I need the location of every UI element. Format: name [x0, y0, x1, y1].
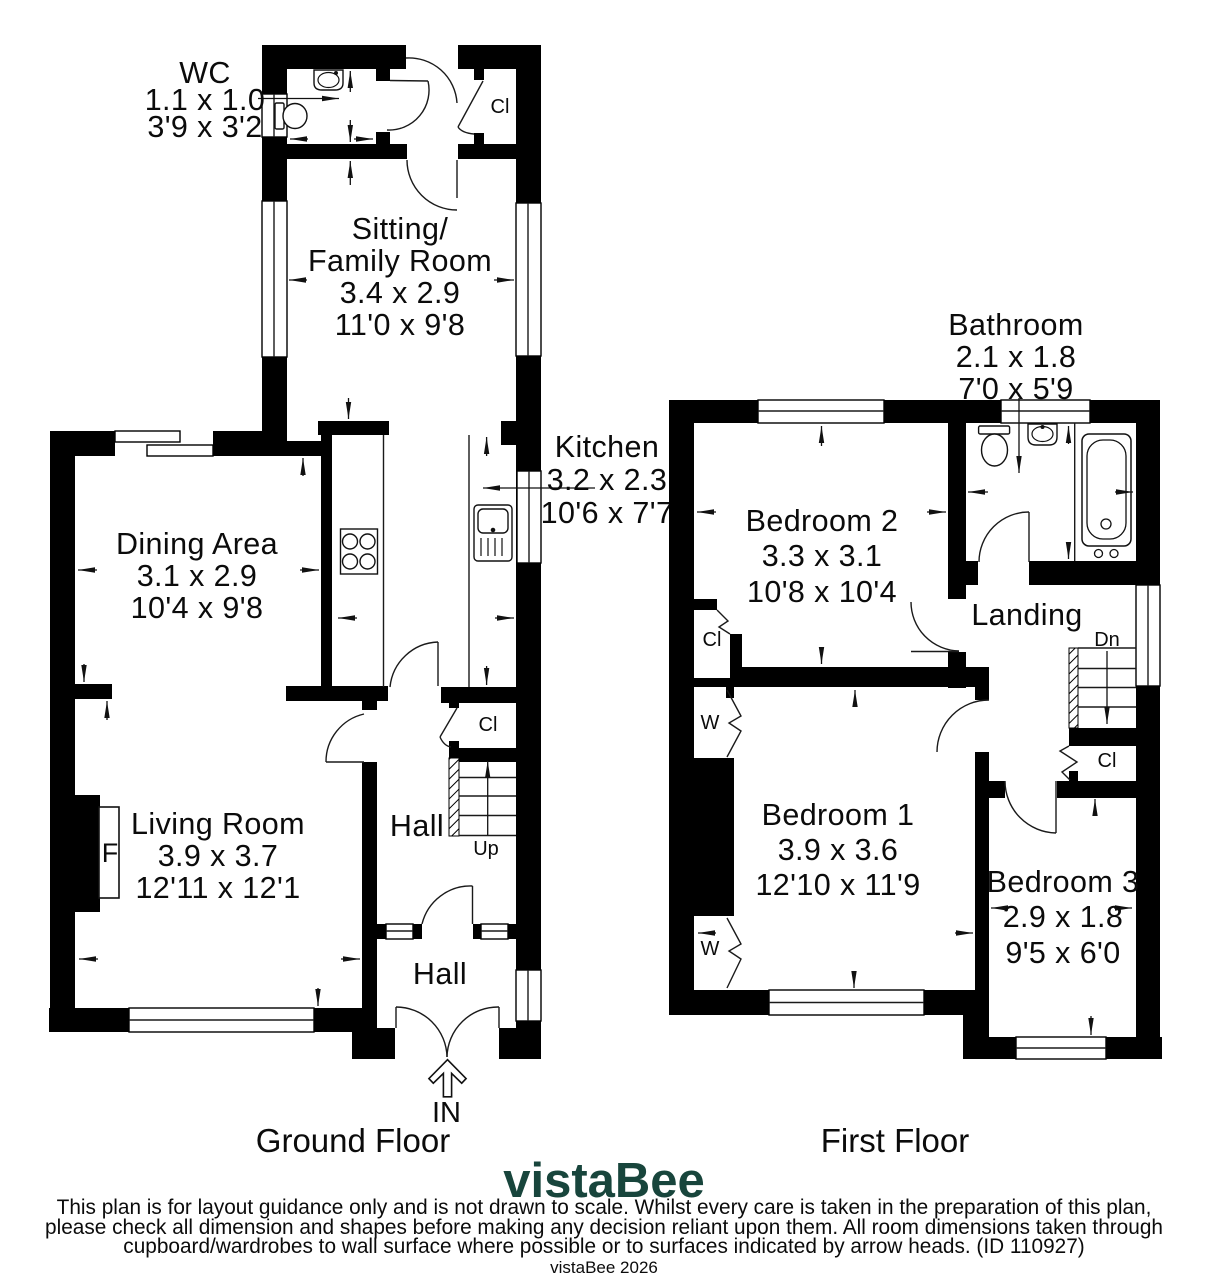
svg-text:F: F	[102, 838, 119, 868]
svg-text:Kitchen: Kitchen	[555, 430, 660, 464]
svg-text:vistaBee 2026: vistaBee 2026	[550, 1258, 658, 1277]
svg-text:Bedroom 2: Bedroom 2	[746, 504, 899, 538]
svg-text:Hall: Hall	[413, 957, 467, 991]
svg-text:Cl: Cl	[491, 96, 510, 118]
svg-text:Sitting/: Sitting/	[352, 212, 449, 246]
svg-text:3.9 x 3.6: 3.9 x 3.6	[778, 833, 899, 867]
svg-text:3'9 x 3'2: 3'9 x 3'2	[147, 110, 262, 144]
svg-text:3.4 x 2.9: 3.4 x 2.9	[340, 276, 461, 310]
svg-text:Up: Up	[473, 838, 499, 860]
svg-text:Bathroom: Bathroom	[948, 308, 1083, 342]
svg-text:Bedroom 1: Bedroom 1	[762, 798, 915, 832]
svg-text:Landing: Landing	[971, 598, 1082, 632]
svg-text:Ground Floor: Ground Floor	[256, 1122, 450, 1159]
svg-text:12'10 x 11'9: 12'10 x 11'9	[755, 868, 920, 902]
svg-text:Family Room: Family Room	[308, 244, 492, 278]
svg-text:12'11 x 12'1: 12'11 x 12'1	[135, 871, 300, 905]
svg-text:3.3 x 3.1: 3.3 x 3.1	[762, 539, 883, 573]
svg-text:W: W	[701, 938, 720, 960]
svg-text:9'5 x 6'0: 9'5 x 6'0	[1005, 936, 1120, 970]
svg-text:2.1 x 1.8: 2.1 x 1.8	[956, 340, 1077, 374]
svg-text:cupboard/wardrobes to wall sur: cupboard/wardrobes to wall surface where…	[123, 1235, 1084, 1258]
svg-text:Cl: Cl	[1098, 750, 1117, 772]
svg-text:Cl: Cl	[703, 629, 722, 651]
svg-text:Cl: Cl	[479, 714, 498, 736]
svg-text:Hall: Hall	[390, 809, 444, 843]
svg-text:11'0 x 9'8: 11'0 x 9'8	[335, 308, 465, 342]
svg-text:7'0 x 5'9: 7'0 x 5'9	[958, 372, 1073, 406]
svg-text:W: W	[701, 712, 720, 734]
svg-text:2.9 x 1.8: 2.9 x 1.8	[1003, 900, 1124, 934]
svg-text:Living Room: Living Room	[131, 807, 305, 841]
svg-text:First Floor: First Floor	[821, 1122, 970, 1159]
svg-text:3.2 x 2.3: 3.2 x 2.3	[547, 463, 668, 497]
svg-text:10'8 x 10'4: 10'8 x 10'4	[747, 575, 897, 609]
svg-text:3.9 x 3.7: 3.9 x 3.7	[158, 839, 279, 873]
svg-text:3.1 x 2.9: 3.1 x 2.9	[137, 559, 258, 593]
svg-text:10'4 x 9'8: 10'4 x 9'8	[131, 591, 264, 625]
svg-text:Dn: Dn	[1094, 629, 1120, 651]
svg-text:Dining Area: Dining Area	[116, 527, 278, 561]
svg-text:Bedroom 3: Bedroom 3	[987, 865, 1140, 899]
svg-text:10'6 x 7'7: 10'6 x 7'7	[541, 496, 674, 530]
